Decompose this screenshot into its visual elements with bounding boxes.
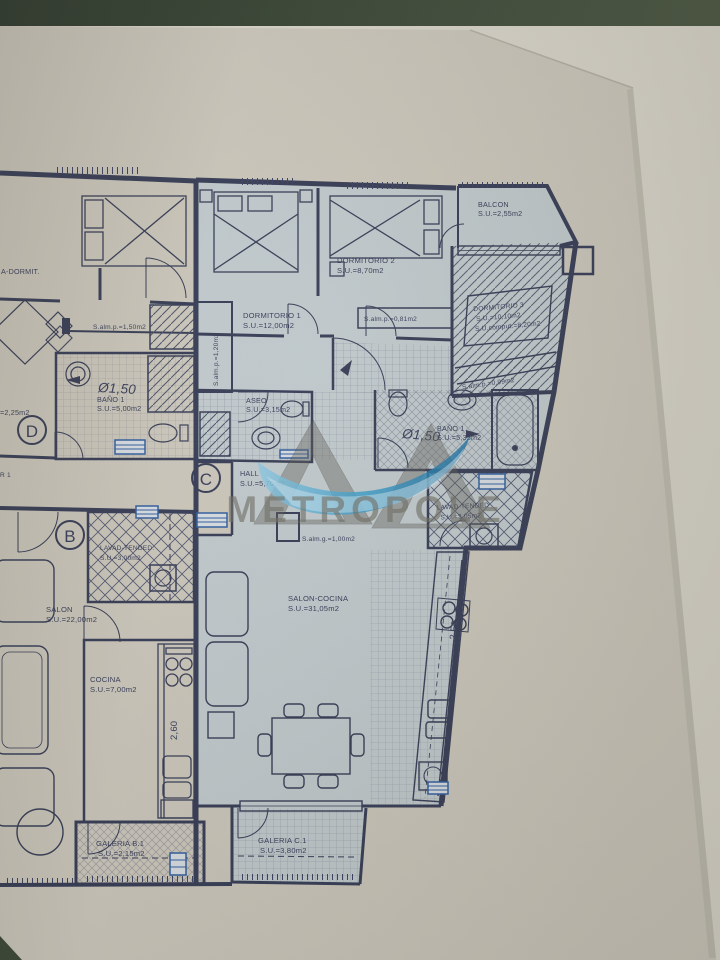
label-galeria-b-area: S.U.=2,15m2 xyxy=(98,849,145,858)
label-cocina-area: S.U.=7,00m2 xyxy=(90,685,137,694)
window-band xyxy=(84,876,196,882)
label-storage-081: S.alm.p.=0,81m2 xyxy=(364,316,417,323)
vestibule-tiles xyxy=(333,342,452,394)
label-storage-150: S.alm.p.=1,50m2 xyxy=(93,324,146,331)
label-lavad-b-area: S.U.=3,00m2 xyxy=(100,555,141,562)
stair-letter-b: B xyxy=(64,527,76,546)
balcony-rail-ticks xyxy=(460,182,546,188)
label-dorm2-area: S.U.=8,70m2 xyxy=(337,266,384,275)
label-balcon-area: S.U.=2,55m2 xyxy=(478,209,522,218)
wall xyxy=(0,884,232,885)
shaft-box xyxy=(197,513,227,527)
label-dormit-partial: A-DORMIT. xyxy=(1,267,40,276)
label-aseo-name: ASEO xyxy=(246,396,267,405)
label-storage-120: S.alm.p.=1,20m2 xyxy=(213,333,220,386)
label-galeria-c-name: GALERIA C.1 xyxy=(258,836,307,845)
label-kitchen-b-dim: 2,60 xyxy=(169,721,180,740)
wall-post xyxy=(62,318,70,334)
window-band xyxy=(56,167,140,174)
shaft-box xyxy=(170,853,186,875)
stair-letter-c: C xyxy=(200,470,212,489)
label-bath-b-area: S.U.=5,00m2 xyxy=(97,404,141,413)
label-bath-c-name: BAÑO 1 xyxy=(437,424,465,433)
window-band xyxy=(238,874,354,880)
label-bath-b-name: BAÑO 1 xyxy=(97,395,125,404)
shower-b xyxy=(148,356,194,412)
label-cocina-name: COCINA xyxy=(90,675,121,684)
label-area-partial: =2,25m2 xyxy=(0,408,30,417)
label-bath-c-area: S.U.=5,35m2 xyxy=(437,433,481,442)
shaft-box xyxy=(115,440,145,454)
label-aseo-area: S.U.=3,15m2 xyxy=(246,405,290,414)
label-storage-g100: S.alm.g.=1,00m2 xyxy=(302,536,355,543)
watermark-brand: METROPOLE xyxy=(226,489,505,530)
shaft-box xyxy=(428,782,448,794)
label-salon-cocina-name: SALON-COCINA xyxy=(288,594,349,603)
green-border-top xyxy=(0,0,720,26)
label-galeria-b-name: GALERIA B.1 xyxy=(96,839,144,848)
floor-plan-photo: BALCON S.U.=2,55m2 DORMITORIO 2 S.U.=8,7… xyxy=(0,0,720,960)
shower-aseo xyxy=(200,412,230,456)
label-lavad-b-name: LAVAD-TENDED. xyxy=(100,545,154,552)
label-salon-cocina-area: S.U.=31,05m2 xyxy=(288,604,339,613)
shaft-box xyxy=(136,506,158,518)
label-hall-name: HALL xyxy=(240,469,259,478)
label-dorm1-area: S.U.=12,00m2 xyxy=(243,321,294,330)
label-kitchen-c-dim: 2,53 xyxy=(448,620,461,640)
label-dorm2-name: DORMITORIO 2 xyxy=(337,256,395,265)
closet-d xyxy=(150,305,194,349)
label-salon-b-area: S.U.=22,00m2 xyxy=(46,615,97,624)
label-salon-b-name: SALON xyxy=(46,605,73,614)
galeria-c-tiles xyxy=(233,808,364,882)
window-band xyxy=(238,178,294,185)
label-balcon-name: BALCON xyxy=(478,200,509,209)
pillar xyxy=(563,247,593,274)
window-band xyxy=(344,182,408,189)
shaft-box xyxy=(479,474,505,489)
label-room-partial: R 1 xyxy=(0,472,11,479)
label-dorm1-name: DORMITORIO 1 xyxy=(243,311,301,320)
label-galeria-c-area: S.U.=3,80m2 xyxy=(260,846,307,855)
wall xyxy=(0,456,56,458)
stair-letter-d: D xyxy=(26,422,38,441)
